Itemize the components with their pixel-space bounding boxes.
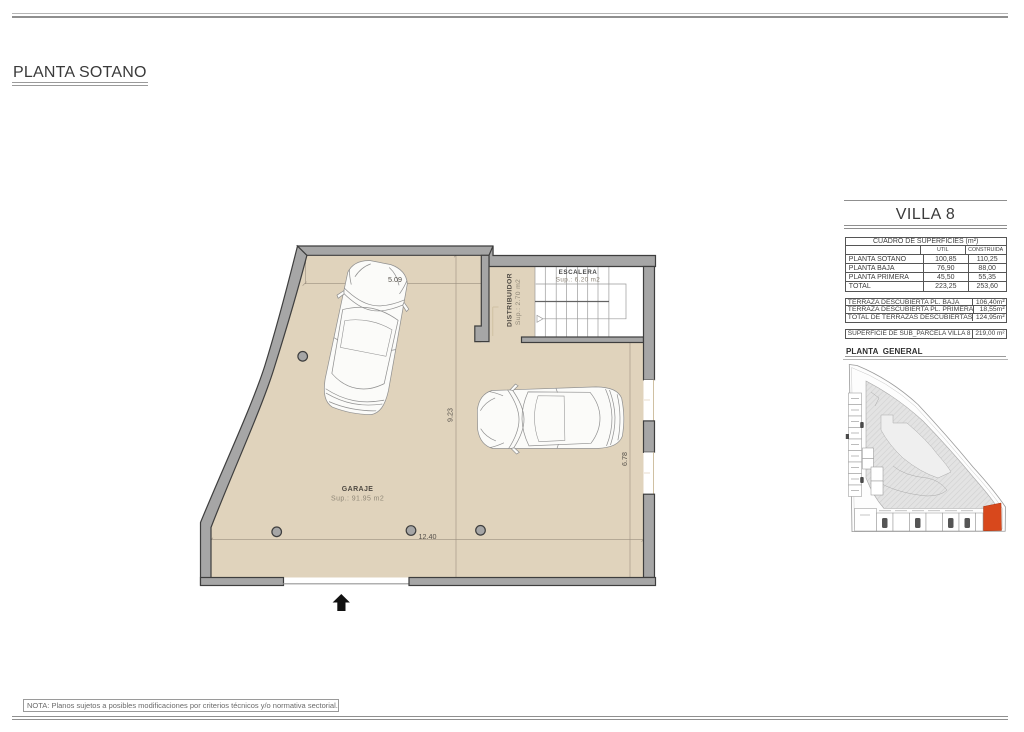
svg-text:Sup.: 2.70 m2: Sup.: 2.70 m2 — [515, 279, 522, 325]
svg-text:ESCALERA: ESCALERA — [559, 269, 598, 276]
svg-text:9.23: 9.23 — [446, 408, 455, 422]
svg-text:Sup.: 91.95 m2: Sup.: 91.95 m2 — [331, 496, 384, 503]
svg-text:Sup.: 6.20 m2: Sup.: 6.20 m2 — [556, 277, 601, 284]
svg-text:GARAJE: GARAJE — [342, 486, 374, 493]
svg-text:5.09: 5.09 — [388, 275, 402, 284]
svg-text:DISTRIBUIDOR: DISTRIBUIDOR — [507, 273, 514, 327]
svg-text:12.40: 12.40 — [419, 532, 437, 541]
svg-text:6.78: 6.78 — [620, 452, 629, 466]
